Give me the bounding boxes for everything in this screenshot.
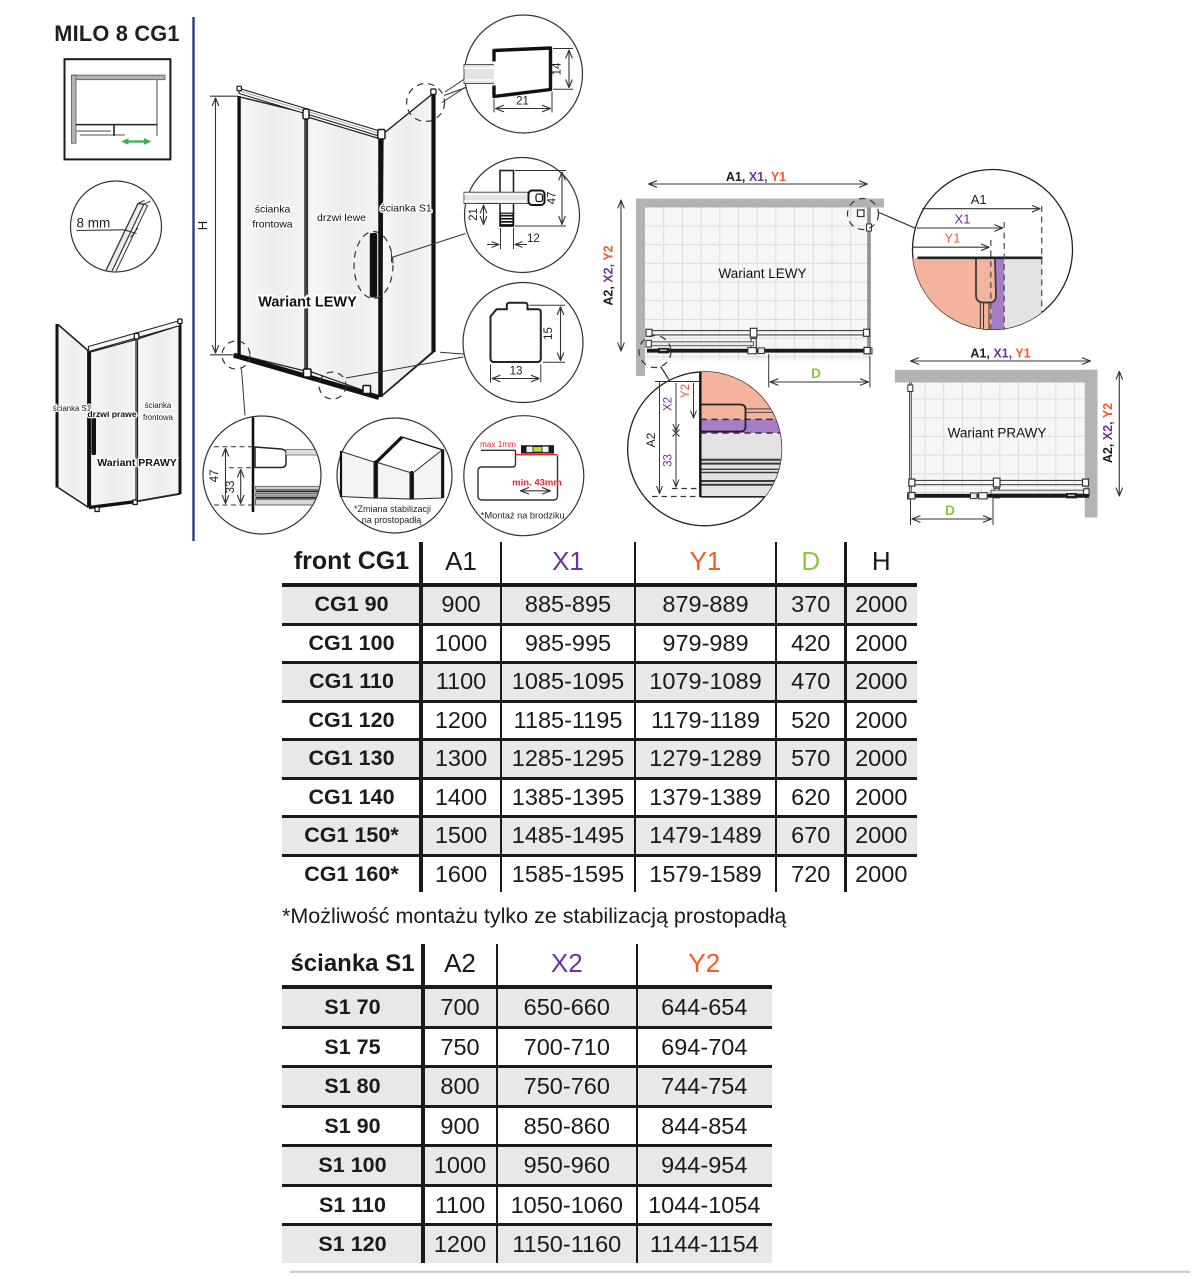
svg-text:33: 33 [663,454,675,467]
svg-text:47: 47 [547,192,559,205]
svg-text:A1, X1, Y1: A1, X1, Y1 [970,347,1030,361]
svg-text:*Montaż na brodziku: *Montaż na brodziku [481,511,565,521]
svg-text:A2, X2, Y2: A2, X2, Y2 [1101,403,1115,463]
svg-text:drzwi prawe: drzwi prawe [87,409,136,419]
svg-text:drzwi lewe: drzwi lewe [317,212,366,224]
svg-text:X1: X1 [955,212,971,227]
svg-text:14: 14 [552,62,564,75]
svg-text:A1: A1 [971,192,987,207]
svg-text:Y1: Y1 [945,231,961,246]
svg-text:Wariant LEWY: Wariant LEWY [258,295,357,311]
svg-text:max 1mm: max 1mm [480,440,516,449]
svg-text:frontowa: frontowa [252,219,292,231]
svg-text:ścianka: ścianka [145,401,172,410]
svg-text:*Zmiana stabilizacji: *Zmiana stabilizacji [354,504,431,514]
svg-text:D: D [811,366,821,381]
svg-text:15: 15 [543,327,555,340]
svg-text:ścianka S1: ścianka S1 [380,203,432,215]
svg-text:47: 47 [209,470,221,483]
svg-text:ścianka S1: ścianka S1 [53,404,91,413]
svg-text:Wariant PRAWY: Wariant PRAWY [948,426,1047,441]
svg-text:H: H [195,221,210,230]
svg-text:12: 12 [527,233,540,245]
svg-text:min. 43mm: min. 43mm [512,478,562,489]
svg-text:X2: X2 [663,397,675,411]
svg-text:21: 21 [468,208,480,221]
svg-text:33: 33 [225,481,237,494]
svg-text:MILO 8 CG1: MILO 8 CG1 [54,21,180,46]
svg-text:A2, X2, Y2: A2, X2, Y2 [602,245,616,305]
svg-text:13: 13 [510,366,523,378]
svg-text:8 mm: 8 mm [77,216,111,231]
svg-text:frontowa: frontowa [143,413,174,422]
svg-text:A1, X1, Y1: A1, X1, Y1 [726,170,786,184]
svg-text:Wariant LEWY: Wariant LEWY [718,266,806,281]
svg-text:Wariant PRAWY: Wariant PRAWY [97,457,177,469]
svg-text:Y2: Y2 [680,384,692,398]
svg-text:ścianka: ścianka [255,204,291,216]
svg-text:na prostopadłą: na prostopadłą [362,515,422,525]
svg-text:A2: A2 [644,432,658,447]
svg-text:D: D [945,503,955,518]
svg-text:21: 21 [516,96,529,108]
